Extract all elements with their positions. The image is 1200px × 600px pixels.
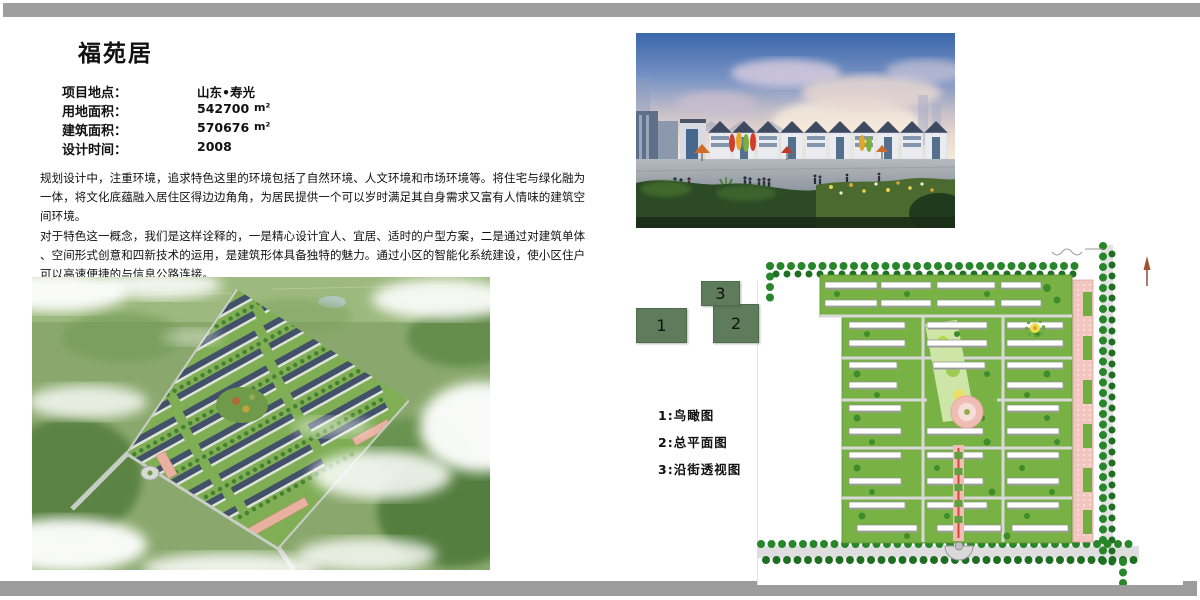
info-label: 用地面积：	[62, 101, 127, 120]
figure-box-3: 3	[701, 281, 740, 306]
paragraph-line: 一体，将文化底蕴融入居住区得边边角角，为居民提供一个可以岁时满足其自身需求又富有…	[40, 189, 585, 208]
paragraph-line: 规划设计中，注重环境，追求特色这里的环境包括了自然环境、人文环境和市场环境等。将…	[40, 170, 585, 189]
paragraph-line: 间环境。	[40, 208, 585, 227]
street-perspective-rendering	[636, 33, 955, 228]
info-row-design-year: 设计时间： 2008	[62, 139, 382, 158]
description-text: 规划设计中，注重环境，追求特色这里的环境包括了自然环境、人文环境和市场环境等。将…	[40, 170, 585, 285]
legend-item-aerial: 1:鸟瞰图	[658, 405, 714, 424]
info-unit: m²	[254, 101, 270, 114]
info-label: 设计时间：	[62, 139, 127, 158]
paragraph-line: 、空间形式创意和四新技术的运用，是建筑形体具备独特的魅力。通过小区的智能化系统建…	[40, 247, 585, 266]
info-unit: m²	[254, 120, 270, 133]
info-row-land-area: 用地面积： 542700 m²	[62, 101, 382, 120]
project-info-block: 项目地点： 山东•寿光 用地面积： 542700 m² 建筑面积： 570676…	[62, 82, 382, 158]
site-plan-image	[757, 240, 1183, 585]
legend-item-street: 3:沿街透视图	[658, 459, 741, 478]
figure-box-1-label: 1	[656, 316, 666, 335]
info-label: 建筑面积：	[62, 120, 127, 139]
info-row-building-area: 建筑面积： 570676 m²	[62, 120, 382, 139]
info-value: 570676	[197, 120, 249, 135]
figure-box-3-label: 3	[715, 284, 725, 303]
page-title: 福苑居	[78, 34, 153, 68]
master-plan-drawing	[757, 240, 1183, 585]
figure-box-1: 1	[636, 308, 687, 343]
info-value: 2008	[197, 139, 232, 154]
aerial-view-image	[32, 277, 490, 570]
info-value: 山东•寿光	[197, 82, 255, 101]
aerial-rendering	[32, 277, 490, 570]
info-label: 项目地点：	[62, 82, 127, 101]
figure-box-2-label: 2	[731, 314, 741, 333]
paragraph-line: 对于特色这一概念，我们是这样诠释的，一是精心设计宜人、宜居、适时的户型方案，二是…	[40, 228, 585, 247]
info-row-location: 项目地点： 山东•寿光	[62, 82, 382, 101]
commercial-strip	[1073, 280, 1093, 542]
central-plaza	[951, 396, 983, 428]
portfolio-page: 福苑居 项目地点： 山东•寿光 用地面积： 542700 m² 建筑面积： 57…	[0, 0, 1200, 600]
legend-item-masterplan: 2:总平面图	[658, 432, 728, 451]
roundabout	[141, 466, 159, 480]
street-perspective-image	[636, 33, 955, 228]
info-value: 542700	[197, 101, 249, 116]
figure-box-2: 2	[713, 304, 759, 343]
top-frame-bar	[3, 3, 1200, 17]
